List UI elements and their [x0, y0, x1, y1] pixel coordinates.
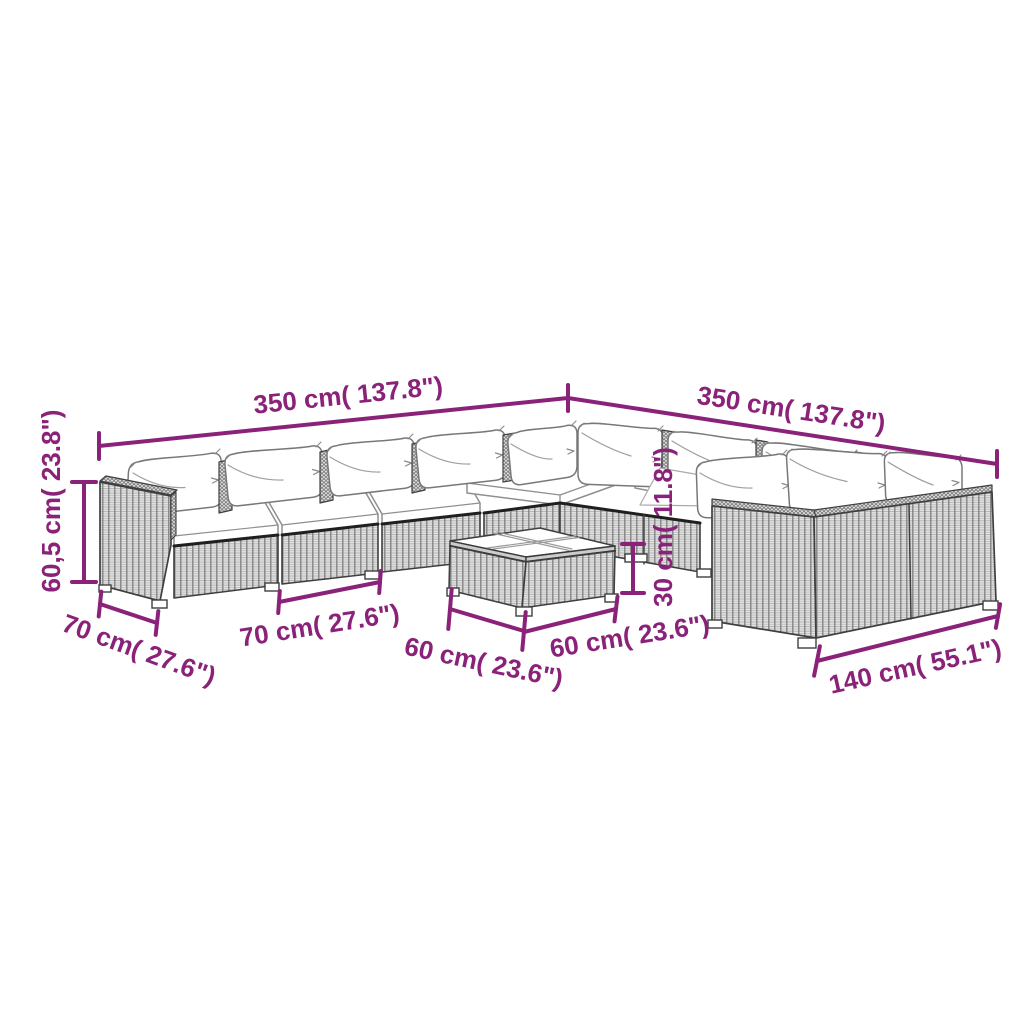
svg-text:30 cm( 11.8"): 30 cm( 11.8") — [648, 447, 678, 607]
svg-text:60,5 cm( 23.8"): 60,5 cm( 23.8") — [36, 410, 66, 593]
